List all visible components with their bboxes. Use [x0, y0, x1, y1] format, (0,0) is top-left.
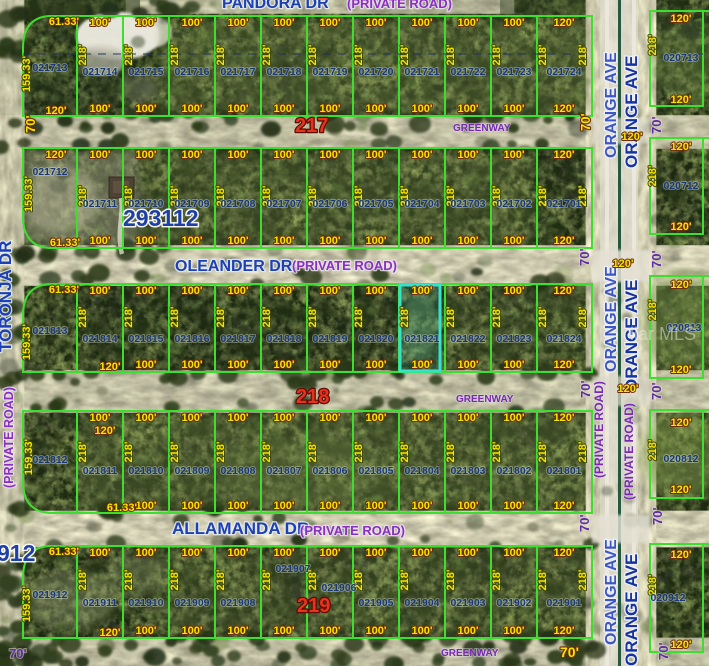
- svg-text:ORANGE AVE: ORANGE AVE: [622, 56, 641, 168]
- svg-text:120': 120': [613, 258, 634, 270]
- svg-text:120': 120': [618, 383, 639, 395]
- svg-text:021901: 021901: [546, 597, 581, 609]
- svg-text:70': 70': [9, 646, 27, 661]
- svg-text:100': 100': [458, 149, 479, 161]
- svg-text:021720: 021720: [358, 66, 393, 78]
- svg-text:021804: 021804: [404, 465, 439, 477]
- svg-text:120': 120': [671, 279, 692, 291]
- svg-text:100': 100': [412, 149, 433, 161]
- svg-text:100': 100': [320, 285, 341, 297]
- svg-text:100': 100': [182, 547, 203, 559]
- svg-text:100': 100': [458, 412, 479, 424]
- svg-text:100': 100': [228, 412, 249, 424]
- svg-text:70': 70': [649, 116, 664, 134]
- svg-text:021905: 021905: [358, 597, 393, 609]
- svg-text:020713: 020713: [663, 52, 698, 64]
- svg-text:021715: 021715: [128, 66, 163, 78]
- svg-text:218': 218': [261, 306, 273, 327]
- svg-text:120': 120': [671, 221, 692, 233]
- svg-text:100': 100': [504, 625, 525, 637]
- svg-text:ORANGE AVE: ORANGE AVE: [622, 554, 641, 666]
- svg-text:217: 217: [295, 115, 328, 137]
- svg-text:100': 100': [228, 285, 249, 297]
- svg-text:021903: 021903: [450, 597, 485, 609]
- svg-text:218': 218': [445, 569, 457, 590]
- svg-text:70': 70': [560, 644, 579, 660]
- svg-text:(PRIVATE ROAD): (PRIVATE ROAD): [622, 403, 636, 500]
- svg-text:70': 70': [656, 642, 671, 660]
- svg-text:100': 100': [366, 235, 387, 247]
- svg-text:100': 100': [412, 547, 433, 559]
- svg-text:100': 100': [274, 17, 295, 29]
- svg-text:100': 100': [458, 500, 479, 512]
- svg-text:100': 100': [136, 625, 157, 637]
- svg-text:100': 100': [412, 359, 433, 371]
- svg-text:218': 218': [77, 44, 89, 65]
- svg-text:100': 100': [182, 17, 203, 29]
- svg-text:021707: 021707: [266, 198, 301, 210]
- svg-text:218': 218': [77, 569, 89, 590]
- svg-text:120': 120': [554, 17, 575, 29]
- svg-text:100': 100': [458, 17, 479, 29]
- svg-text:70': 70': [577, 248, 592, 266]
- svg-text:100': 100': [182, 500, 203, 512]
- svg-text:021909: 021909: [174, 597, 209, 609]
- svg-text:120': 120': [554, 149, 575, 161]
- svg-text:021703: 021703: [450, 198, 485, 210]
- svg-text:218': 218': [307, 44, 319, 65]
- svg-text:PANDORA DR: PANDORA DR: [222, 0, 329, 12]
- svg-text:021724: 021724: [546, 66, 581, 78]
- svg-text:100': 100': [274, 412, 295, 424]
- svg-text:100': 100': [458, 235, 479, 247]
- svg-text:100': 100': [320, 500, 341, 512]
- svg-text:100': 100': [136, 17, 157, 29]
- svg-text:120': 120': [671, 417, 692, 429]
- svg-text:021902: 021902: [496, 597, 531, 609]
- svg-text:100': 100': [136, 235, 157, 247]
- svg-text:218': 218': [577, 441, 589, 462]
- svg-text:100': 100': [412, 103, 433, 115]
- svg-text:021717: 021717: [220, 66, 255, 78]
- svg-text:100': 100': [274, 359, 295, 371]
- svg-text:218': 218': [445, 441, 457, 462]
- svg-text:100': 100': [182, 359, 203, 371]
- svg-text:021815: 021815: [128, 333, 163, 345]
- svg-text:120': 120': [554, 359, 575, 371]
- svg-text:021904: 021904: [404, 597, 439, 609]
- svg-text:100': 100': [458, 359, 479, 371]
- svg-text:100': 100': [412, 500, 433, 512]
- svg-text:021813: 021813: [32, 325, 67, 337]
- svg-text:912: 912: [0, 540, 35, 566]
- svg-text:218': 218': [261, 44, 273, 65]
- svg-text:120': 120': [554, 235, 575, 247]
- svg-text:218': 218': [399, 441, 411, 462]
- svg-text:021803: 021803: [450, 465, 485, 477]
- svg-text:100': 100': [320, 235, 341, 247]
- svg-text:(PRIVATE ROAD): (PRIVATE ROAD): [292, 258, 397, 273]
- svg-text:70': 70': [23, 115, 38, 133]
- svg-text:100': 100': [136, 103, 157, 115]
- svg-text:218': 218': [647, 299, 659, 320]
- svg-text:100': 100': [366, 412, 387, 424]
- svg-text:218': 218': [77, 306, 89, 327]
- svg-text:218': 218': [399, 44, 411, 65]
- svg-text:021814: 021814: [82, 333, 117, 345]
- svg-text:100': 100': [366, 103, 387, 115]
- svg-text:218': 218': [577, 306, 589, 327]
- svg-text:100': 100': [90, 235, 111, 247]
- svg-text:120': 120': [100, 361, 121, 373]
- svg-text:100': 100': [366, 149, 387, 161]
- svg-text:120': 120': [554, 500, 575, 512]
- svg-text:021824: 021824: [546, 333, 581, 345]
- svg-text:100': 100': [458, 285, 479, 297]
- svg-text:100': 100': [136, 285, 157, 297]
- svg-text:159.33': 159.33': [23, 175, 35, 212]
- svg-text:100': 100': [412, 17, 433, 29]
- svg-text:021802: 021802: [496, 465, 531, 477]
- svg-text:218': 218': [399, 306, 411, 327]
- svg-text:100': 100': [90, 412, 111, 424]
- svg-text:100': 100': [228, 625, 249, 637]
- svg-text:GREENWAY: GREENWAY: [441, 648, 499, 659]
- svg-text:021818: 021818: [266, 333, 301, 345]
- svg-text:218': 218': [77, 441, 89, 462]
- svg-text:100': 100': [228, 500, 249, 512]
- svg-text:021822: 021822: [450, 333, 485, 345]
- svg-text:ALLAMANDA DR: ALLAMANDA DR: [172, 519, 309, 538]
- svg-text:021819: 021819: [312, 333, 347, 345]
- svg-text:100': 100': [274, 235, 295, 247]
- svg-text:021713: 021713: [32, 62, 67, 74]
- svg-text:100': 100': [90, 547, 111, 559]
- svg-text:021812: 021812: [32, 454, 67, 466]
- svg-text:100': 100': [458, 103, 479, 115]
- svg-text:021816: 021816: [174, 333, 209, 345]
- svg-text:100': 100': [458, 547, 479, 559]
- svg-text:218': 218': [169, 306, 181, 327]
- svg-text:ORANGE AVE: ORANGE AVE: [603, 52, 620, 158]
- svg-text:218': 218': [123, 306, 135, 327]
- svg-text:70': 70': [649, 382, 664, 400]
- svg-text:218': 218': [577, 569, 589, 590]
- svg-text:159.33': 159.33': [21, 55, 33, 92]
- svg-text:120': 120': [554, 412, 575, 424]
- svg-text:021805: 021805: [358, 465, 393, 477]
- svg-text:120': 120': [671, 13, 692, 25]
- svg-text:70': 70': [577, 514, 592, 532]
- svg-text:020912: 020912: [650, 592, 685, 604]
- svg-text:100': 100': [320, 103, 341, 115]
- svg-text:120': 120': [554, 547, 575, 559]
- svg-text:100': 100': [412, 285, 433, 297]
- svg-text:100': 100': [182, 625, 203, 637]
- svg-text:100': 100': [504, 359, 525, 371]
- svg-text:100': 100': [366, 359, 387, 371]
- svg-text:120': 120': [671, 94, 692, 106]
- svg-text:020712: 020712: [663, 180, 698, 192]
- svg-text:100': 100': [136, 149, 157, 161]
- svg-text:100': 100': [412, 235, 433, 247]
- svg-text:100': 100': [366, 547, 387, 559]
- svg-text:61.33': 61.33': [49, 546, 80, 558]
- svg-text:021712: 021712: [32, 166, 67, 178]
- svg-text:021817: 021817: [220, 333, 255, 345]
- svg-text:218': 218': [261, 441, 273, 462]
- svg-text:70': 70': [650, 507, 665, 525]
- svg-text:100': 100': [228, 235, 249, 247]
- svg-text:70': 70': [578, 380, 593, 398]
- svg-text:100': 100': [136, 359, 157, 371]
- svg-text:218': 218': [537, 441, 549, 462]
- svg-text:120': 120': [46, 149, 67, 161]
- svg-text:218': 218': [537, 569, 549, 590]
- svg-text:100': 100': [274, 625, 295, 637]
- svg-text:021820: 021820: [358, 333, 393, 345]
- svg-text:llar MLS: llar MLS: [630, 324, 696, 344]
- svg-text:100': 100': [504, 235, 525, 247]
- svg-text:100': 100': [412, 625, 433, 637]
- svg-text:GREENWAY: GREENWAY: [456, 394, 514, 405]
- svg-text:(PRIVATE ROAD): (PRIVATE ROAD): [347, 0, 452, 11]
- svg-text:218': 218': [261, 569, 273, 590]
- svg-text:100': 100': [136, 500, 157, 512]
- svg-text:61.33': 61.33': [50, 237, 81, 249]
- svg-text:218': 218': [353, 306, 365, 327]
- svg-text:021716: 021716: [174, 66, 209, 78]
- svg-text:021809: 021809: [174, 465, 209, 477]
- svg-text:021723: 021723: [496, 66, 531, 78]
- svg-text:120': 120': [622, 131, 643, 143]
- svg-text:021811: 021811: [83, 465, 118, 477]
- svg-text:021711: 021711: [83, 198, 118, 210]
- svg-text:218': 218': [491, 569, 503, 590]
- svg-text:218': 218': [491, 44, 503, 65]
- svg-text:218': 218': [123, 441, 135, 462]
- svg-text:100': 100': [228, 547, 249, 559]
- svg-text:100': 100': [412, 412, 433, 424]
- svg-text:021907: 021907: [275, 563, 310, 575]
- svg-text:(PRIVATE ROAD): (PRIVATE ROAD): [300, 523, 405, 538]
- svg-text:GREENWAY: GREENWAY: [453, 123, 511, 134]
- svg-text:100': 100': [320, 547, 341, 559]
- svg-text:218': 218': [353, 44, 365, 65]
- svg-text:100': 100': [90, 103, 111, 115]
- svg-text:021714: 021714: [82, 66, 117, 78]
- svg-text:218': 218': [215, 569, 227, 590]
- svg-text:100': 100': [182, 149, 203, 161]
- svg-text:70': 70': [578, 113, 593, 131]
- svg-text:021708: 021708: [220, 198, 255, 210]
- svg-text:OLEANDER DR: OLEANDER DR: [175, 258, 293, 275]
- svg-text:100': 100': [90, 17, 111, 29]
- svg-text:120': 120': [554, 625, 575, 637]
- svg-text:021807: 021807: [266, 465, 301, 477]
- svg-text:021705: 021705: [358, 198, 393, 210]
- svg-text:021706: 021706: [312, 198, 347, 210]
- svg-text:100': 100': [182, 103, 203, 115]
- svg-text:218': 218': [647, 34, 659, 55]
- svg-text:100': 100': [320, 359, 341, 371]
- svg-text:100': 100': [458, 625, 479, 637]
- svg-text:218': 218': [123, 44, 135, 65]
- svg-text:100': 100': [274, 547, 295, 559]
- svg-text:100': 100': [274, 500, 295, 512]
- svg-text:100': 100': [182, 285, 203, 297]
- svg-text:100': 100': [320, 412, 341, 424]
- svg-text:021910: 021910: [128, 597, 163, 609]
- svg-text:021808: 021808: [220, 465, 255, 477]
- svg-text:120': 120': [100, 627, 121, 639]
- svg-text:021702: 021702: [496, 198, 531, 210]
- svg-text:100': 100': [504, 103, 525, 115]
- svg-text:100': 100': [504, 500, 525, 512]
- svg-text:100': 100': [136, 412, 157, 424]
- svg-text:218': 218': [577, 44, 589, 65]
- svg-text:100': 100': [504, 412, 525, 424]
- svg-text:100': 100': [228, 359, 249, 371]
- svg-text:218: 218: [296, 386, 329, 408]
- svg-text:218': 218': [353, 441, 365, 462]
- svg-text:218': 218': [491, 306, 503, 327]
- svg-text:021912: 021912: [32, 589, 67, 601]
- svg-text:021908: 021908: [220, 597, 255, 609]
- svg-text:120': 120': [46, 105, 67, 117]
- svg-text:ORANGE AVE: ORANGE AVE: [603, 266, 620, 372]
- svg-text:100': 100': [228, 149, 249, 161]
- svg-text:021810: 021810: [128, 465, 163, 477]
- svg-text:218': 218': [491, 441, 503, 462]
- svg-text:218': 218': [215, 306, 227, 327]
- svg-text:100': 100': [320, 149, 341, 161]
- svg-text:218': 218': [537, 44, 549, 65]
- svg-text:218': 218': [399, 569, 411, 590]
- svg-text:021821: 021821: [404, 333, 439, 345]
- svg-text:218': 218': [169, 569, 181, 590]
- svg-text:021721: 021721: [404, 66, 439, 78]
- svg-text:159.33': 159.33': [21, 323, 33, 360]
- svg-text:021719: 021719: [312, 66, 347, 78]
- svg-text:100': 100': [366, 625, 387, 637]
- svg-text:100': 100': [504, 17, 525, 29]
- svg-text:100': 100': [504, 149, 525, 161]
- svg-text:(PRIVATE ROAD): (PRIVATE ROAD): [592, 381, 606, 478]
- svg-text:021806: 021806: [312, 465, 347, 477]
- svg-text:70': 70': [649, 250, 664, 268]
- svg-text:61.33': 61.33': [107, 502, 138, 514]
- svg-text:021722: 021722: [450, 66, 485, 78]
- svg-text:120': 120': [95, 425, 116, 437]
- svg-text:218': 218': [169, 441, 181, 462]
- svg-text:120': 120': [671, 549, 692, 561]
- svg-text:218': 218': [215, 44, 227, 65]
- svg-text:218': 218': [647, 439, 659, 460]
- svg-text:100': 100': [182, 412, 203, 424]
- svg-text:100': 100': [90, 285, 111, 297]
- svg-text:100': 100': [228, 17, 249, 29]
- svg-text:020812: 020812: [663, 453, 698, 465]
- svg-text:021911: 021911: [83, 597, 118, 609]
- svg-text:219: 219: [297, 595, 330, 617]
- svg-text:100': 100': [366, 17, 387, 29]
- svg-text:293112: 293112: [123, 205, 198, 231]
- svg-text:120': 120': [671, 364, 692, 376]
- svg-text:TORONJA DR: TORONJA DR: [0, 241, 15, 352]
- svg-text:021704: 021704: [404, 198, 439, 210]
- svg-text:021701: 021701: [546, 198, 581, 210]
- svg-text:021801: 021801: [546, 465, 581, 477]
- svg-text:100': 100': [366, 285, 387, 297]
- svg-text:120': 120': [671, 639, 692, 651]
- svg-text:120': 120': [554, 103, 575, 115]
- svg-text:021823: 021823: [496, 333, 531, 345]
- svg-text:021906: 021906: [321, 582, 356, 594]
- svg-text:100': 100': [504, 547, 525, 559]
- svg-text:ORANGE AVE: ORANGE AVE: [603, 539, 620, 645]
- svg-text:120': 120': [671, 141, 692, 153]
- svg-text:218': 218': [537, 306, 549, 327]
- svg-text:218': 218': [215, 441, 227, 462]
- svg-text:218': 218': [307, 441, 319, 462]
- svg-text:100': 100': [504, 285, 525, 297]
- svg-text:100': 100': [136, 547, 157, 559]
- svg-text:021718: 021718: [266, 66, 301, 78]
- svg-text:218': 218': [647, 165, 659, 186]
- svg-text:120': 120': [554, 285, 575, 297]
- svg-text:218': 218': [445, 306, 457, 327]
- svg-text:159.33': 159.33': [21, 585, 33, 622]
- svg-text:(PRIVATE ROAD): (PRIVATE ROAD): [2, 387, 16, 488]
- svg-text:218': 218': [307, 306, 319, 327]
- svg-text:100': 100': [228, 103, 249, 115]
- svg-text:100': 100': [274, 103, 295, 115]
- svg-text:218': 218': [445, 44, 457, 65]
- svg-text:100': 100': [366, 500, 387, 512]
- svg-text:100': 100': [320, 625, 341, 637]
- svg-text:218': 218': [169, 44, 181, 65]
- svg-text:100': 100': [90, 149, 111, 161]
- svg-text:120': 120': [671, 484, 692, 496]
- svg-text:61.33': 61.33': [49, 284, 80, 296]
- svg-text:100': 100': [274, 149, 295, 161]
- svg-text:100': 100': [274, 285, 295, 297]
- svg-text:218': 218': [123, 569, 135, 590]
- svg-text:61.33': 61.33': [49, 16, 80, 28]
- svg-text:100': 100': [320, 17, 341, 29]
- svg-text:100': 100': [182, 235, 203, 247]
